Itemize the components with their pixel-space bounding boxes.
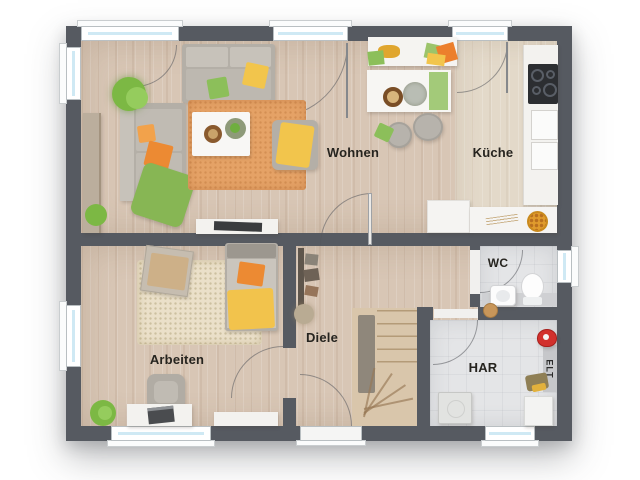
cushion <box>120 103 134 201</box>
toilet <box>521 273 544 306</box>
wheat-stalks <box>486 214 519 225</box>
window-glass <box>118 432 204 435</box>
window-kitchen-top <box>452 26 508 41</box>
window-glass <box>456 32 504 35</box>
room-label-har: HAR <box>450 360 516 376</box>
storage-bench <box>140 245 194 297</box>
burner <box>543 83 557 97</box>
blanket <box>147 253 189 291</box>
door-leaf <box>368 193 372 245</box>
window-har-bottom <box>485 426 535 441</box>
door-leaf <box>506 42 508 93</box>
pillow <box>137 124 156 143</box>
cabinet <box>214 412 278 426</box>
burner <box>531 69 544 82</box>
cushion <box>186 47 228 67</box>
plant <box>88 398 118 428</box>
window-living-top <box>81 26 179 41</box>
table-runner <box>429 72 448 110</box>
coffee-table <box>192 112 250 156</box>
plant <box>84 202 110 228</box>
room-label-wc: WC <box>468 256 528 270</box>
window-glass <box>278 32 342 35</box>
plant-leaves <box>98 406 112 420</box>
room-label-diele: Diele <box>292 330 352 346</box>
toilet-bowl <box>521 273 544 300</box>
staircase <box>352 308 417 426</box>
dining-bench <box>368 37 457 66</box>
laptop <box>147 406 175 425</box>
room-label-kueche: Küche <box>443 145 543 161</box>
tv <box>214 221 262 232</box>
rack-rail <box>298 248 304 308</box>
sink-basin <box>496 290 510 302</box>
wall-office-bottom <box>283 398 296 426</box>
pillow <box>242 62 269 89</box>
window-office-bottom <box>111 426 211 441</box>
cushion <box>154 381 178 403</box>
red-unit <box>537 329 557 347</box>
plant-leaves <box>230 123 240 133</box>
appliance <box>524 396 553 426</box>
daybed <box>225 243 278 331</box>
bowl <box>383 87 403 107</box>
dining-table <box>367 70 451 112</box>
hanging-item <box>304 285 319 297</box>
window-sill <box>107 440 215 447</box>
room-label-arbeiten: Arbeiten <box>127 352 227 368</box>
hanging-item <box>304 253 318 265</box>
window-office-left <box>66 305 81 367</box>
window-glass <box>489 432 531 435</box>
washing-machine <box>438 392 472 424</box>
washer-drum <box>447 400 465 418</box>
window-glass <box>72 51 75 96</box>
toilet-tank <box>523 297 542 305</box>
door-leaf <box>434 309 478 318</box>
kitchen-counter <box>470 207 557 233</box>
kitchen-units <box>523 45 558 205</box>
window-glass <box>563 253 566 280</box>
wall-har-left <box>417 320 430 426</box>
kitchen-island <box>427 200 470 233</box>
fruit-bowl <box>527 211 548 232</box>
window-glass <box>72 310 75 363</box>
room-label-wohnen: Wohnen <box>303 145 403 161</box>
burner <box>532 86 541 95</box>
floor-plan-canvas: ELT Wohnen Küche Arbeiten Diele WC HAR <box>0 0 640 480</box>
plant-leaves <box>126 87 148 109</box>
window-wc-right <box>557 250 572 283</box>
hanging-item <box>303 268 320 282</box>
stool <box>483 303 498 318</box>
floor-plan: ELT Wohnen Küche Arbeiten Diele WC HAR <box>66 26 572 441</box>
wall-wc-stub-bottom <box>470 293 480 307</box>
dried-plant <box>294 304 314 324</box>
window-sill <box>481 440 539 447</box>
blanket <box>227 288 275 330</box>
tv-board <box>196 219 278 234</box>
red-unit-detail <box>543 334 549 340</box>
door-leaf <box>346 43 348 118</box>
sofa <box>182 44 275 103</box>
burner <box>546 70 555 79</box>
stair-treads <box>377 310 417 374</box>
plant <box>110 73 152 115</box>
entrance-door <box>300 426 362 441</box>
window-glass <box>88 32 172 35</box>
flower-vase <box>403 82 427 106</box>
pillow <box>206 76 229 99</box>
plant-leaves <box>85 204 107 226</box>
coat-rack <box>298 248 322 308</box>
headboard <box>227 244 276 258</box>
plant <box>225 118 246 139</box>
window-sill <box>571 246 579 287</box>
bowl <box>204 125 222 143</box>
pillow <box>367 50 384 66</box>
window-living-left <box>66 47 81 100</box>
dining-chair <box>413 113 443 141</box>
cabinet-niche <box>531 110 558 140</box>
pillow <box>237 261 266 286</box>
wall-mid-left <box>81 233 318 246</box>
wall-har-top-left <box>417 307 433 320</box>
pillow <box>426 53 445 66</box>
cooktop <box>528 64 558 104</box>
desk <box>127 404 192 426</box>
window-terrace-door <box>273 26 348 41</box>
wall-mid-right <box>372 233 557 246</box>
